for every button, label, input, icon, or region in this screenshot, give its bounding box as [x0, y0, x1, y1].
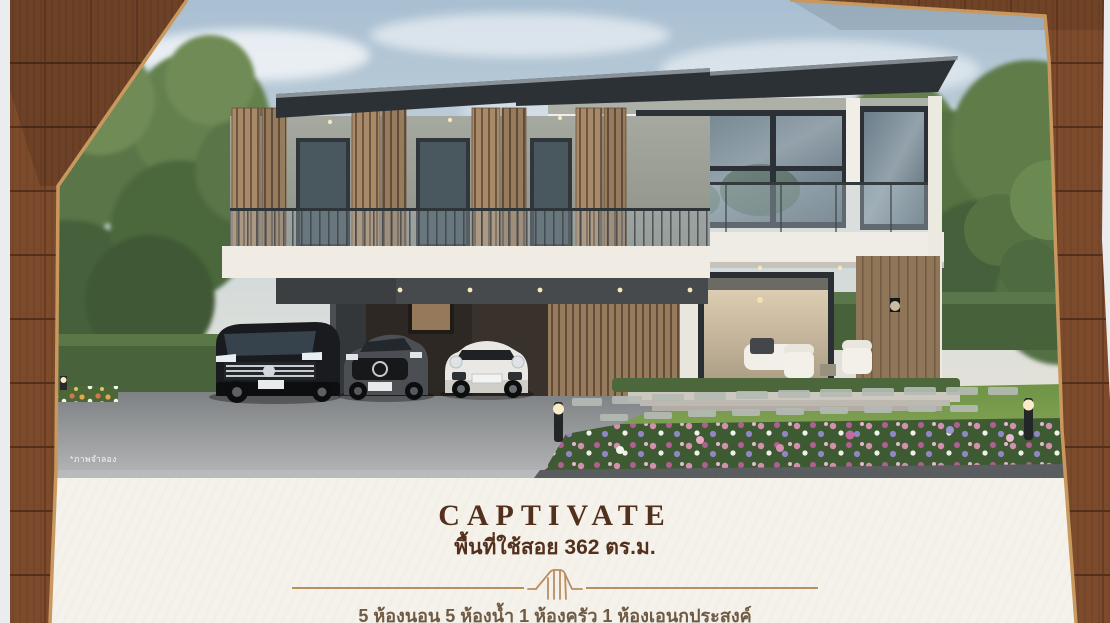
decorative-divider: [0, 569, 1110, 601]
house-render-illustration: [0, 0, 1110, 478]
usable-area-label: พื้นที่ใช้สอย 362 ตร.ม.: [0, 535, 1110, 561]
driveway-apron: [52, 470, 548, 478]
divider-rule-left: [292, 587, 524, 589]
house-render-photo: [0, 0, 1110, 478]
project-name-title: CAPTIVATE: [0, 500, 1110, 532]
house-gable-icon: [526, 569, 584, 601]
room-specs-label: 5 ห้องนอน 5 ห้องน้ำ 1 ห้องครัว 1 ห้องเอน…: [0, 604, 1110, 623]
brochure-page: *ภาพจำลอง CAPTIVATE พื้นที่ใช้สอย 362 ตร…: [0, 0, 1110, 623]
render-disclaimer: *ภาพจำลอง: [70, 452, 117, 466]
left-garden-light: [60, 376, 67, 390]
divider-rule-right: [586, 587, 818, 589]
black-van: [216, 322, 340, 403]
info-section: CAPTIVATE พื้นที่ใช้สอย 362 ตร.ม. 5 ห้อง…: [0, 478, 1110, 623]
